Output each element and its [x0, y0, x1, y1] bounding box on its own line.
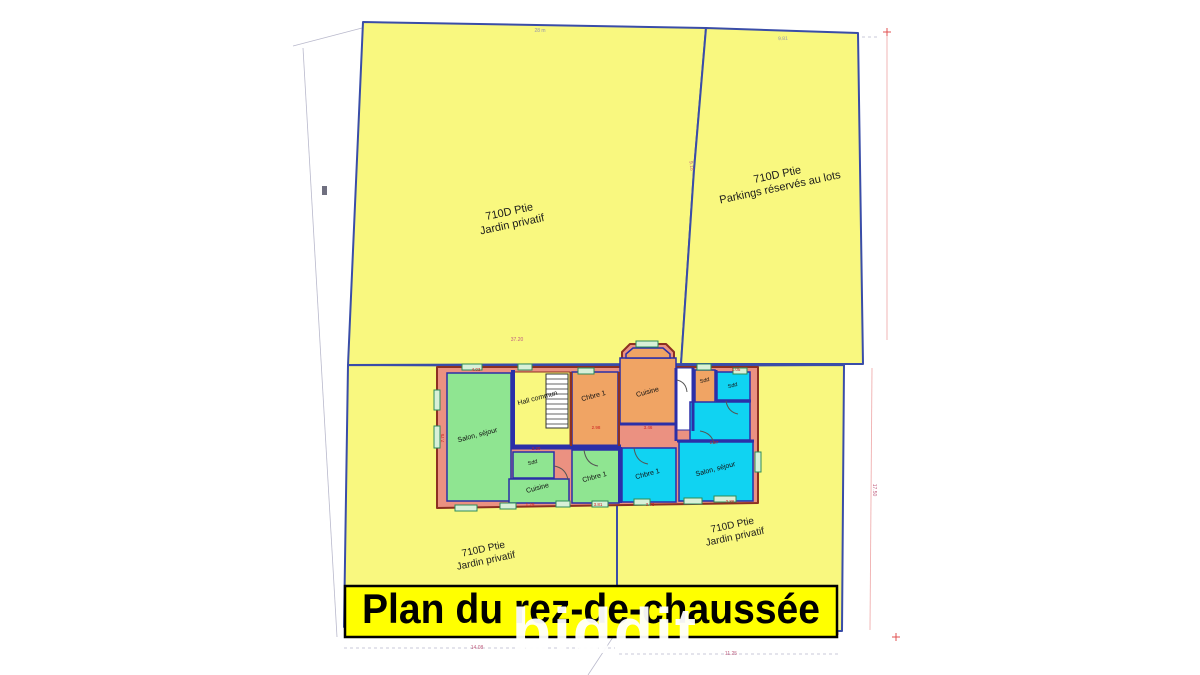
dimension-label: 2.86: [726, 499, 735, 504]
window: [636, 341, 658, 347]
dimension-label: 1.05: [732, 367, 741, 372]
dimension-label: 2.20: [532, 446, 541, 451]
dimension-label: 3.73: [646, 502, 655, 507]
watermark-text: biddit: [512, 595, 698, 667]
dimension-label: 4.03: [472, 367, 481, 372]
dimension-label: 17.50: [871, 484, 877, 497]
window: [556, 501, 570, 507]
room-right-corridor: [690, 402, 750, 440]
parcel-top-right: [681, 28, 863, 364]
dimension-label: 3.46: [644, 425, 653, 430]
dimension-label: 28 m: [534, 28, 545, 34]
dimension-label: 14.08: [471, 645, 484, 651]
dimension-label: 1.29: [526, 502, 535, 507]
parcel-top-left: [348, 22, 706, 365]
dimension-label: 9.81: [778, 36, 788, 42]
parcels: [344, 22, 863, 631]
window: [455, 505, 477, 511]
window: [684, 498, 702, 504]
window: [434, 390, 440, 410]
floor-plan-page: 710D Ptie Jardin privatif 710D Ptie Park…: [0, 0, 1200, 675]
room-middle-chbre: [572, 372, 618, 446]
dimension-label: 37.20: [511, 337, 524, 343]
dimension-label: 9.18: [687, 161, 694, 172]
dimension-label: 2.98: [592, 425, 601, 430]
dim-tick: [322, 186, 327, 195]
window: [578, 368, 594, 374]
window: [697, 364, 711, 370]
floor-plan-canvas: 710D Ptie Jardin privatif 710D Ptie Park…: [0, 0, 1200, 675]
dimension-label: 2.97: [710, 440, 719, 445]
room-middle-cuisine-bay: [626, 348, 670, 358]
window: [500, 503, 516, 509]
survey-cross-top-right: [883, 28, 891, 36]
survey-cross-bottom-right: [892, 633, 900, 641]
window: [518, 364, 532, 370]
dim-line-left-diagonal: [303, 48, 337, 637]
red-dim-line-right-bottom: [870, 368, 872, 630]
dim-line-top-left: [293, 28, 362, 46]
window: [755, 452, 761, 472]
dimension-label: 3.81: [594, 502, 603, 507]
dimension-label: 11.25: [725, 651, 737, 657]
dimension-label: 7.75: [440, 433, 445, 442]
staircase: [546, 374, 568, 428]
